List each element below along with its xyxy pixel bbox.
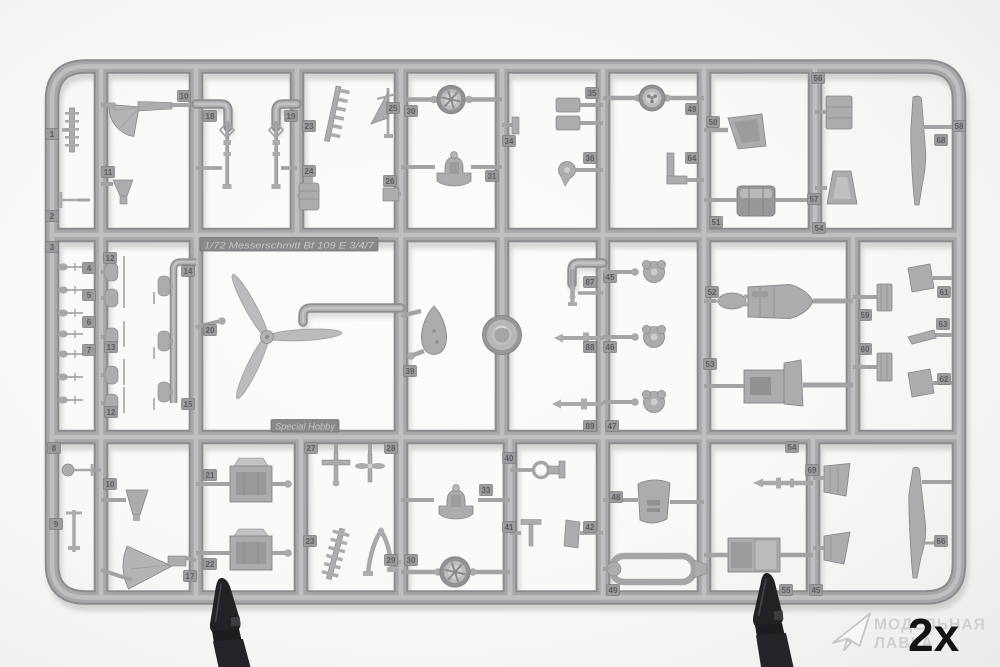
svg-text:2x: 2x: [908, 609, 960, 661]
svg-text:10: 10: [106, 480, 115, 489]
svg-text:13: 13: [107, 343, 116, 352]
svg-text:14: 14: [184, 267, 193, 276]
svg-text:2: 2: [50, 212, 55, 221]
svg-text:30: 30: [407, 556, 416, 565]
svg-text:12: 12: [107, 408, 116, 417]
svg-text:40: 40: [505, 454, 514, 463]
svg-text:Special Hobby: Special Hobby: [275, 422, 336, 433]
svg-text:66: 66: [937, 537, 946, 546]
svg-text:3: 3: [50, 243, 55, 252]
svg-text:57: 57: [810, 195, 819, 204]
svg-text:8: 8: [52, 444, 57, 453]
svg-text:88: 88: [586, 343, 595, 352]
svg-text:29: 29: [387, 556, 396, 565]
svg-text:9: 9: [54, 520, 59, 529]
svg-text:51: 51: [712, 218, 721, 227]
svg-text:42: 42: [586, 523, 595, 532]
svg-text:49: 49: [688, 105, 697, 114]
svg-text:17: 17: [186, 572, 195, 581]
svg-text:41: 41: [505, 523, 514, 532]
svg-text:58: 58: [955, 122, 964, 131]
svg-text:25: 25: [389, 104, 398, 113]
svg-text:46: 46: [606, 343, 615, 352]
svg-text:30: 30: [407, 107, 416, 116]
svg-text:54: 54: [815, 224, 824, 233]
svg-text:35: 35: [588, 89, 597, 98]
svg-text:89: 89: [586, 422, 595, 431]
svg-text:47: 47: [608, 422, 617, 431]
svg-text:18: 18: [206, 112, 215, 121]
svg-text:54: 54: [788, 443, 797, 452]
svg-text:21: 21: [206, 471, 215, 480]
svg-text:87: 87: [586, 278, 595, 287]
svg-text:64: 64: [688, 154, 697, 163]
svg-text:56: 56: [814, 74, 823, 83]
svg-text:49: 49: [609, 586, 618, 595]
svg-text:1: 1: [50, 130, 55, 139]
svg-text:7: 7: [87, 346, 92, 355]
svg-text:61: 61: [940, 288, 949, 297]
svg-text:39: 39: [406, 367, 415, 376]
svg-text:53: 53: [706, 360, 715, 369]
svg-text:48: 48: [612, 493, 621, 502]
svg-text:28: 28: [387, 444, 396, 453]
svg-text:52: 52: [708, 288, 717, 297]
svg-text:6: 6: [87, 318, 92, 327]
svg-text:59: 59: [861, 311, 870, 320]
svg-text:23: 23: [306, 537, 315, 546]
svg-text:24: 24: [305, 167, 314, 176]
svg-text:68: 68: [937, 136, 946, 145]
svg-text:55: 55: [782, 586, 791, 595]
svg-text:27: 27: [307, 444, 316, 453]
svg-text:23: 23: [305, 122, 314, 131]
svg-text:36: 36: [586, 154, 595, 163]
svg-text:45: 45: [812, 586, 821, 595]
svg-text:20: 20: [206, 326, 215, 335]
svg-text:19: 19: [287, 112, 296, 121]
svg-text:63: 63: [939, 320, 948, 329]
svg-text:60: 60: [861, 345, 870, 354]
svg-text:31: 31: [488, 172, 497, 181]
svg-text:69: 69: [808, 466, 817, 475]
svg-text:11: 11: [104, 168, 113, 177]
svg-text:45: 45: [606, 273, 615, 282]
svg-text:10: 10: [180, 92, 189, 101]
svg-text:1/72 Messerschmitt Bf 109 E 3/: 1/72 Messerschmitt Bf 109 E 3/4/7: [204, 241, 375, 252]
svg-text:50: 50: [709, 118, 718, 127]
svg-text:5: 5: [87, 291, 92, 300]
svg-text:33: 33: [482, 486, 491, 495]
svg-text:22: 22: [206, 560, 215, 569]
svg-text:62: 62: [940, 375, 949, 384]
svg-text:26: 26: [386, 177, 395, 186]
svg-text:15: 15: [184, 400, 193, 409]
svg-text:34: 34: [505, 137, 514, 146]
svg-text:12: 12: [106, 254, 115, 263]
svg-text:4: 4: [87, 264, 92, 273]
